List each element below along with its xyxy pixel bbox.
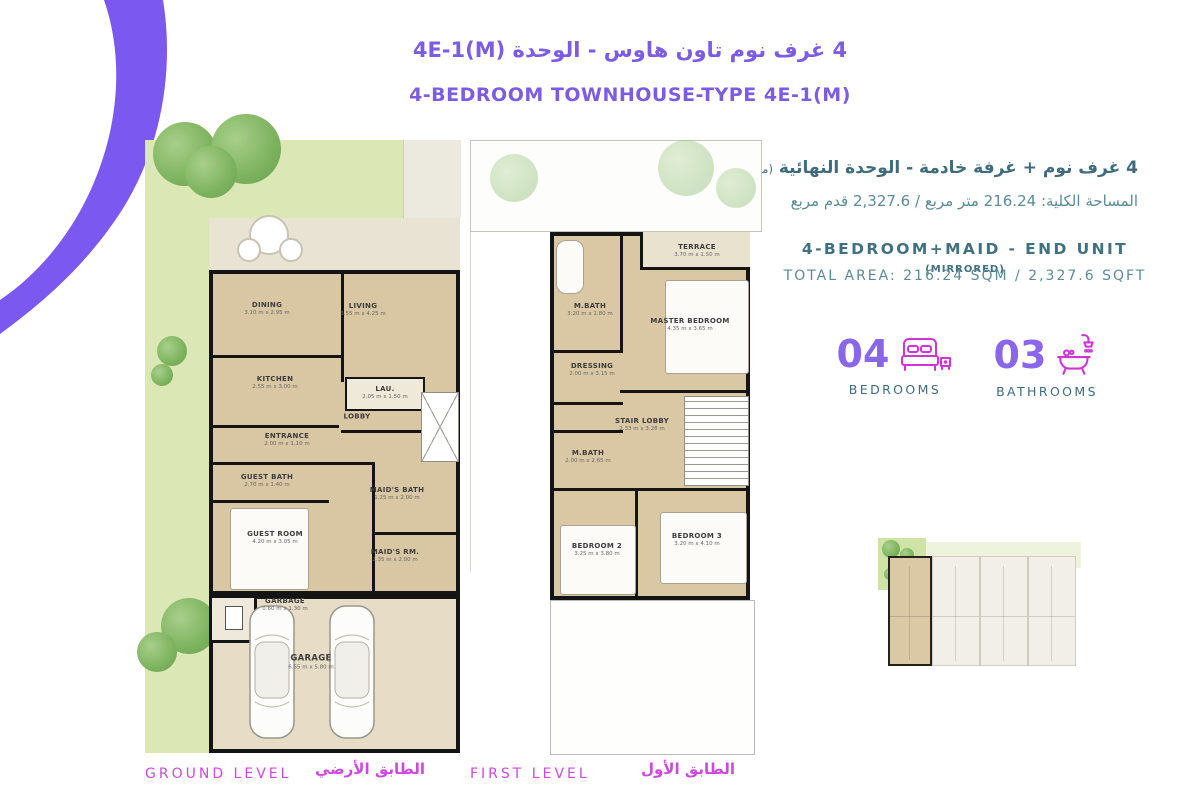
car-top-view [323, 602, 381, 742]
room-label: M.BATH3.20 m x 1.80 m [567, 302, 612, 318]
room-label: BEDROOM 33.20 m x 4.10 m [672, 532, 722, 548]
staircase [421, 392, 459, 462]
room-label: LIVING3.55 m x 4.25 m [340, 302, 385, 318]
staircase [684, 396, 749, 486]
ground-floor-plan: DINING3.10 m x 2.95 m LIVING3.55 m x 4.2… [145, 140, 460, 755]
guest-bed [230, 508, 309, 590]
first-level-label-ar: الطابق الأول [610, 760, 735, 778]
first-level-label-en: FIRST LEVEL [470, 766, 590, 782]
bed-icon [897, 334, 953, 374]
site-plan-thumbnail [878, 538, 1083, 683]
unit-info-ar-main: 4 غرف نوم + غرفة خادمة - الوحدة النهائية [779, 158, 1138, 178]
lower-roof-outline [550, 600, 755, 755]
wall-segment [550, 430, 623, 433]
unit-info-arabic-line1: 4 غرف نوم + غرفة خادمة - الوحدة النهائية… [718, 158, 1138, 178]
patio-chair [279, 238, 303, 262]
wall-segment [209, 500, 329, 503]
first-floor-plan: TERRACE3.70 m x 1.50 m M.BATH3.20 m x 1.… [470, 140, 762, 760]
wall-segment [209, 425, 339, 428]
ground-level-label-ar: الطابق الأرضي [300, 760, 425, 778]
room-label: GARAGE6.55 m x 5.80 m [288, 653, 333, 671]
unit-info-en-main: 4-BEDROOM+MAID - END UNIT [802, 240, 1128, 258]
wall-segment [550, 350, 623, 353]
garden-side-strip [145, 218, 209, 753]
page-title-english: 4-BEDROOM TOWNHOUSE-TYPE 4E-1(M) [330, 84, 930, 106]
wall-segment [209, 355, 344, 358]
wall-segment [550, 402, 623, 405]
tree [151, 364, 173, 386]
site-unit [980, 556, 1028, 666]
site-unit [932, 556, 980, 666]
bathrooms-count: 03 [994, 336, 1047, 374]
wall-segment [550, 488, 750, 491]
bathrooms-label: BATHROOMS [982, 384, 1112, 399]
room-label: DRESSING2.00 m x 3.15 m [569, 362, 614, 378]
site-unit [1028, 556, 1076, 666]
room-label: GUEST BATH2.70 m x 1.40 m [241, 473, 293, 489]
wall-segment [341, 270, 344, 382]
bathtub [556, 240, 584, 294]
car-top-view [243, 602, 301, 742]
room-label: GUEST ROOM4.20 m x 3.05 m [247, 530, 303, 546]
tree [716, 168, 756, 208]
tree [658, 140, 714, 196]
room-label: MAID'S BATH1.25 m x 2.00 m [370, 486, 425, 502]
bed [660, 512, 747, 584]
unit-info-english-line2: TOTAL AREA: 216.24 SQM / 2,327.6 SQFT [780, 268, 1150, 284]
tree [490, 154, 538, 202]
wall-segment [620, 390, 750, 393]
wall-segment [372, 462, 375, 595]
room-label: M.BATH2.00 m x 2.65 m [565, 449, 610, 465]
room-label: ENTRANCE2.00 m x 1.10 m [264, 432, 309, 448]
room-label: KITCHEN2.55 m x 3.00 m [252, 375, 297, 391]
ground-level-label-en: GROUND LEVEL [145, 766, 291, 782]
brochure-page: 4 غرف نوم تاون هاوس - الوحدة 4E-1(M) 4-B… [0, 0, 1200, 800]
tree [185, 146, 237, 198]
garbage-bin-icon [225, 606, 243, 630]
room-label: TERRACE3.70 m x 1.50 m [674, 243, 719, 259]
room-label: STAIR LOBBY2.33 m x 3.28 m [615, 417, 669, 433]
bedrooms-label: BEDROOMS [830, 382, 960, 397]
wall-segment [372, 532, 460, 535]
patio-chair [237, 238, 261, 262]
wall-segment [209, 462, 375, 465]
room-label: LAU.2.05 m x 1.50 m [362, 385, 407, 401]
room-label: GARBAGE0.60 m x 1.30 m [262, 597, 307, 613]
room-label: DINING3.10 m x 2.95 m [244, 301, 289, 317]
site-unit-highlighted [888, 556, 932, 666]
page-title-arabic: 4 غرف نوم تاون هاوس - الوحدة 4E-1(M) [330, 38, 930, 62]
wall-segment [620, 232, 623, 352]
roof-outline-side [470, 232, 471, 572]
tree [157, 336, 187, 366]
bedrooms-stat: 04 BEDROOMS [830, 334, 960, 397]
tree [137, 632, 177, 672]
bedrooms-count: 04 [837, 335, 890, 373]
room-label: BEDROOM 23.25 m x 3.80 m [572, 542, 622, 558]
unit-info-arabic-line2: المساحة الكلية: 216.24 متر مربع / 2,327.… [718, 192, 1138, 210]
room-label: MAID'S RM.2.35 m x 2.00 m [371, 548, 419, 564]
room-label: MASTER BEDROOM4.35 m x 3.65 m [650, 317, 729, 333]
walkway-tiles [403, 140, 461, 218]
bed [560, 525, 636, 595]
room-label: LOBBY [343, 413, 370, 422]
bathtub-icon [1054, 334, 1100, 376]
bathrooms-stat: 03 BATHROOMS [982, 334, 1112, 399]
